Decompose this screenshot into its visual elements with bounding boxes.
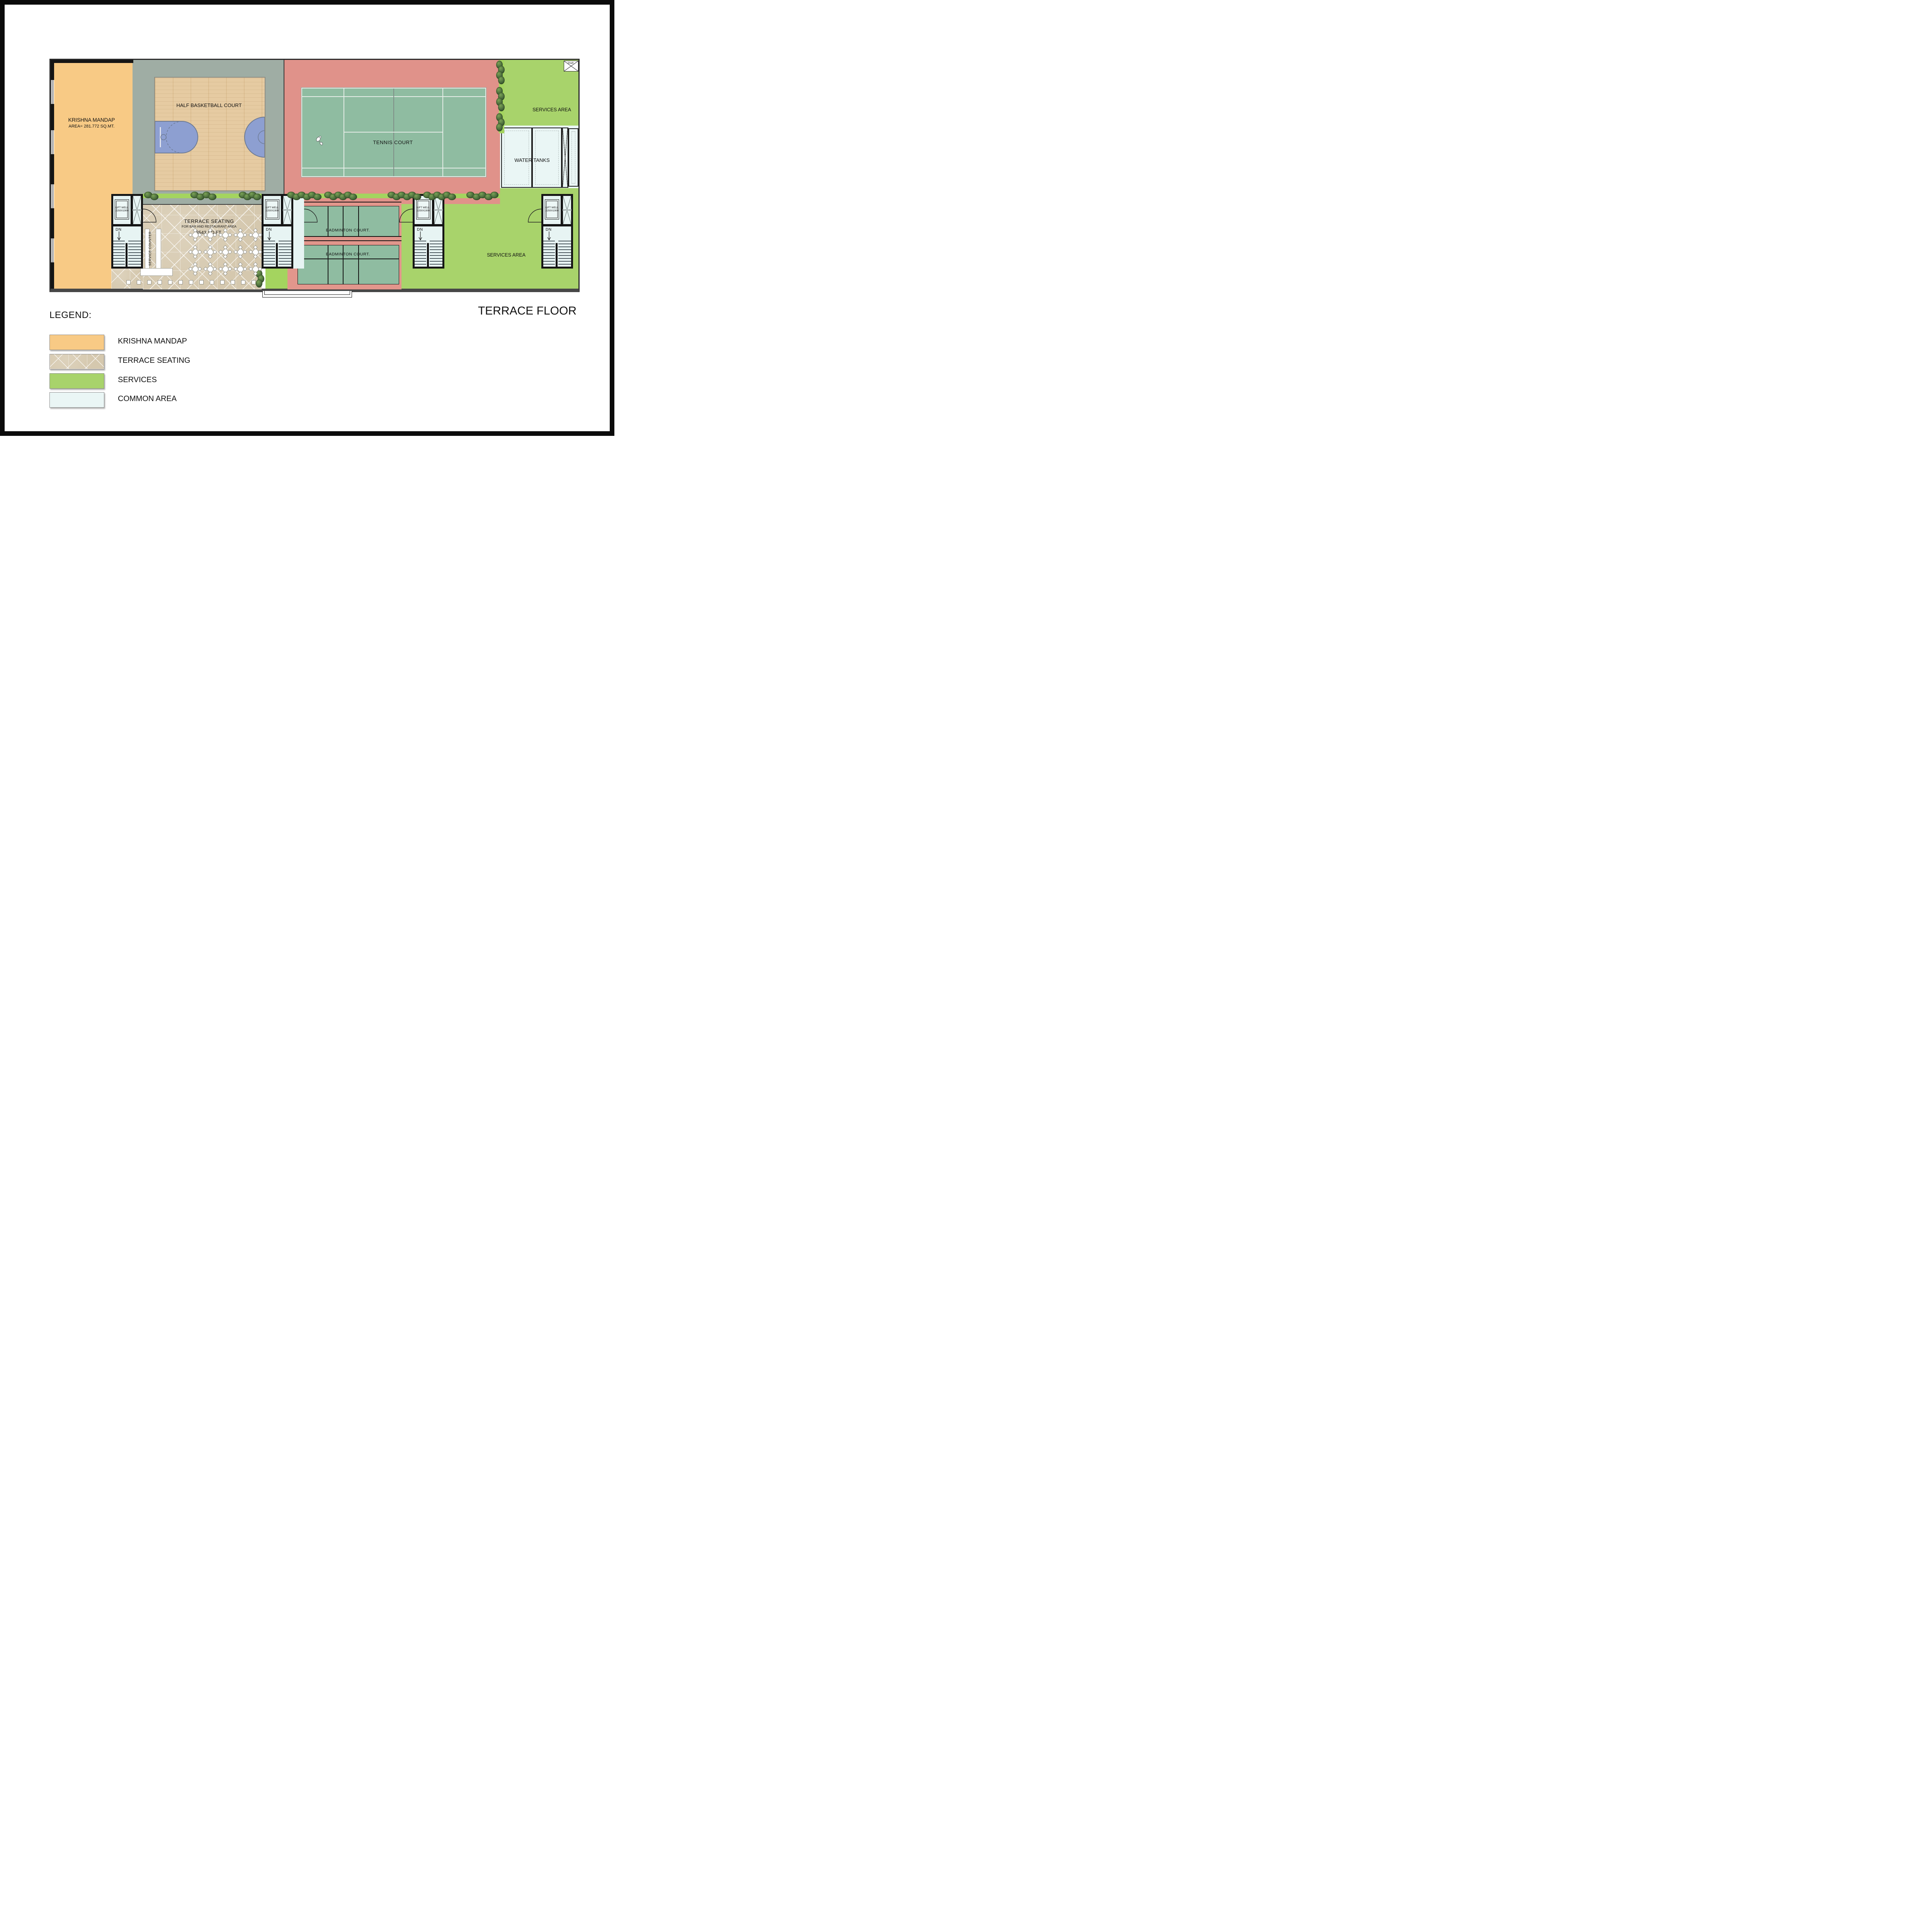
- lift-room: LIFT WELL 2250X1900: [264, 196, 281, 224]
- green-strip-below-core2: [265, 269, 287, 289]
- hedge-bush: [413, 194, 421, 200]
- dn-label: DN: [116, 228, 121, 232]
- services-shaft-label: SERVICES: [563, 209, 571, 211]
- legend-swatch-krishna-mandap: [49, 335, 104, 350]
- hedge-bush: [150, 194, 158, 200]
- stairs: [543, 241, 571, 267]
- badminton-band-line: [287, 240, 401, 241]
- lift-well-size: 2250X1900: [116, 209, 128, 213]
- legend-label-krishna-mandap: KRISHNA MANDAP: [118, 337, 187, 346]
- stair-flight-right: [430, 241, 442, 267]
- services-shaft: SERVICES: [283, 196, 291, 224]
- lift-room: LIFT WELL 2250X1900: [113, 196, 131, 224]
- basketball-court-markings: [155, 78, 265, 190]
- stair-core-1: LIFT WELL 2250X1900 SERVICES DN: [111, 194, 143, 269]
- lift-well-label: LIFT WELL: [546, 206, 558, 209]
- page-title: TERRACE FLOOR: [478, 304, 577, 318]
- stair-flight-left: [543, 241, 555, 267]
- stair-core-4: LIFT WELL 2250X1900 SERVICES DN: [541, 194, 573, 269]
- stairs: [264, 241, 291, 267]
- stair-divider: [427, 243, 429, 267]
- lift-well-size: 2250X1900: [546, 209, 558, 213]
- hedge-bush: [349, 194, 357, 200]
- lift-room: LIFT WELL 2250X1900: [415, 196, 432, 224]
- lift-well-label: LIFT WELL: [417, 206, 430, 209]
- lift-well: LIFT WELL 2250X1900: [416, 199, 430, 219]
- lift-well-label: LIFT WELL: [266, 206, 279, 209]
- basketball-court-floor: [154, 77, 265, 191]
- stair-flight-right: [558, 241, 571, 267]
- services-shaft-label: SERVICES: [283, 209, 292, 211]
- wall-top: [51, 60, 133, 63]
- hedge-bush: [256, 279, 262, 287]
- stairs: [415, 241, 442, 267]
- krishna-mandap-area-label: AREA= 281.772 SQ.MT.: [51, 124, 133, 129]
- bar-seat: [231, 280, 235, 284]
- water-tank-3: [568, 128, 578, 187]
- basketball-court-label: HALF BASKETBALL COURT: [154, 102, 264, 108]
- stair-divider: [126, 243, 128, 267]
- lift-well: LIFT WELL 2250X1900: [115, 199, 129, 219]
- lift-well: LIFT WELL 2250X1900: [545, 199, 559, 219]
- bar-seat: [210, 280, 214, 284]
- services-area-right-label: SERVICES AREA: [473, 252, 539, 258]
- krishna-mandap-label: KRISHNA MANDAP: [51, 117, 133, 123]
- stair-flight-right: [279, 241, 291, 267]
- bar-seat: [179, 280, 183, 284]
- corridor-core-2: [293, 194, 304, 269]
- stair-divider: [276, 243, 278, 267]
- badminton-court-2: [298, 245, 399, 284]
- dn-label: DN: [417, 228, 423, 232]
- hedge-bush: [490, 192, 498, 198]
- badminton2-line: [328, 245, 328, 284]
- stair-hall: DN: [543, 226, 571, 267]
- services-shaft-label: SERVICES: [133, 209, 141, 211]
- terrace-seating-subtitle: FOR BAR AND RESTAURANT AREA: [167, 224, 252, 228]
- entry-ledge-outline: [262, 291, 352, 298]
- drawing-sheet: KRISHNA MANDAP AREA= 281.772 SQ.MT. HALF…: [0, 0, 614, 436]
- stair-hall: DN: [415, 226, 442, 267]
- lift-well-size: 2250X1900: [266, 209, 279, 213]
- services-shaft: SERVICES: [133, 196, 141, 224]
- window-icon: [51, 80, 54, 104]
- stair-core-2: LIFT WELL 2250X1900 SERVICES DN: [262, 194, 293, 269]
- dn-label: DN: [546, 228, 551, 232]
- dn-label: DN: [266, 228, 272, 232]
- hedge-bush: [448, 194, 456, 200]
- lift-well: LIFT WELL 2250X1900: [265, 199, 279, 219]
- legend-label-terrace-seating: TERRACE SEATING: [118, 356, 190, 365]
- stair-flight-left: [264, 241, 275, 267]
- bar-seat: [252, 280, 256, 284]
- bar-seat: [147, 280, 151, 284]
- badminton-court-2-label: BADMINTON COURT.: [298, 252, 398, 257]
- window-icon: [51, 130, 54, 154]
- stair-flight-left: [415, 241, 426, 267]
- lift-well-size: 2250X1900: [417, 209, 430, 213]
- bar-seat: [168, 280, 172, 284]
- stairs: [113, 241, 141, 267]
- bar-seat: [126, 280, 131, 284]
- service-counter-label: SERVICE COUNTER: [148, 230, 156, 267]
- stair-hall: DN: [264, 226, 291, 267]
- badminton-zone: BADMINTON COURT. BADMINTON COURT.: [287, 202, 401, 289]
- tennis-center-service-line: [344, 132, 443, 133]
- shaft-box: Shaft: [564, 61, 578, 71]
- lift-room: LIFT WELL 2250X1900: [543, 196, 561, 224]
- hedge-bush: [498, 103, 505, 111]
- water-tanks-label: WATER TANKS: [500, 157, 564, 163]
- hedge-bush: [253, 194, 261, 200]
- wall-left-with-windows: [51, 60, 54, 289]
- badminton2-line: [358, 245, 359, 284]
- services-shaft-label: SERVICES: [434, 209, 443, 211]
- lift-well-label: LIFT WELL: [116, 206, 128, 209]
- floor-plan: KRISHNA MANDAP AREA= 281.772 SQ.MT. HALF…: [49, 59, 580, 292]
- bar-seat: [137, 280, 141, 284]
- services-shaft: SERVICES: [563, 196, 571, 224]
- service-counter-bar-bottom: [140, 268, 173, 276]
- bar-seat: [220, 280, 224, 284]
- services-area-top-label: SERVICES AREA: [519, 107, 585, 112]
- bar-seat: [189, 280, 193, 284]
- hedge-bush: [208, 194, 216, 200]
- services-shaft: SERVICES: [434, 196, 442, 224]
- window-icon: [51, 184, 54, 208]
- tennis-court-label: TENNIS COURT: [301, 139, 485, 145]
- stair-hall: DN: [113, 226, 141, 267]
- stair-flight-left: [113, 241, 125, 267]
- hedge-bush: [313, 194, 321, 200]
- water-tank-3-dashed: [571, 131, 575, 184]
- tennis-court: [301, 88, 486, 177]
- stair-flight-right: [128, 241, 141, 267]
- bar-seat: [241, 280, 245, 284]
- service-counter-bar-right: [156, 229, 161, 269]
- stair-core-3: LIFT WELL 2250X1900 SERVICES DN: [413, 194, 444, 269]
- legend-title: LEGEND:: [49, 310, 92, 321]
- badminton-court-1-label: BADMINTON COURT.: [298, 228, 398, 233]
- badminton2-service-line: [298, 259, 399, 259]
- hedge-bush: [496, 123, 503, 131]
- window-icon: [51, 238, 54, 262]
- legend-swatch-services: [49, 373, 104, 389]
- legend-swatch-terrace-seating: [49, 354, 104, 369]
- legend-label-services: SERVICES: [118, 376, 157, 384]
- legend-swatch-common-area: [49, 392, 104, 408]
- badminton2-line: [343, 245, 344, 284]
- stair-divider: [556, 243, 558, 267]
- bar-seat: [158, 280, 162, 284]
- terrace-seating-floor-lower: [111, 269, 143, 289]
- hedge-bush: [498, 76, 505, 84]
- badminton-band-line: [287, 236, 401, 237]
- terrace-seating-title: TERRACE SEATING: [167, 218, 252, 224]
- entry-ledge-inner-line: [264, 291, 350, 295]
- legend-label-common-area: COMMON AREA: [118, 395, 177, 403]
- shaft-label: Shaft: [568, 62, 573, 65]
- bar-seat: [199, 280, 204, 284]
